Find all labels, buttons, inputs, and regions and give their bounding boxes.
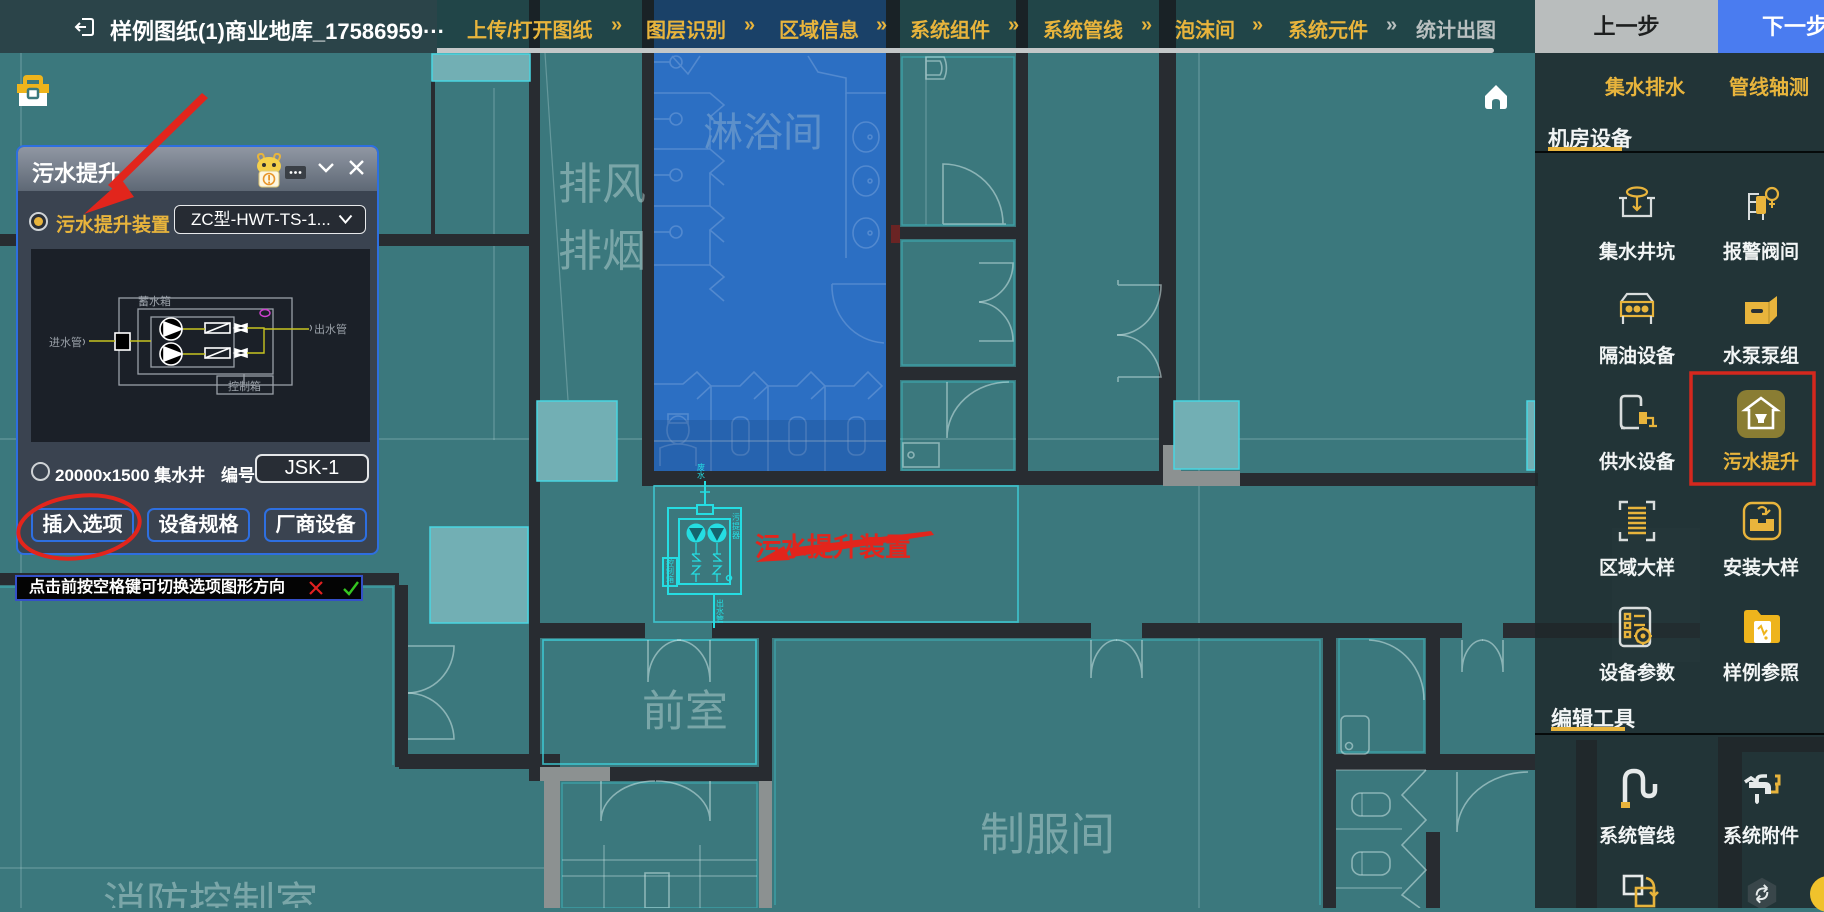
svg-text:蓄水箱: 蓄水箱: [138, 294, 171, 308]
svg-text:箱: 箱: [666, 574, 674, 584]
svg-text:出水管: 出水管: [314, 322, 347, 336]
svg-text:排风: 排风: [558, 160, 646, 209]
svg-text:提: 提: [732, 521, 740, 531]
svg-text:水: 水: [697, 470, 705, 480]
svg-text:淋浴间: 淋浴间: [703, 111, 823, 155]
svg-text:控制箱: 控制箱: [228, 379, 261, 393]
svg-text:进水管: 进水管: [49, 335, 82, 349]
svg-text:排烟: 排烟: [558, 227, 646, 276]
svg-text:污: 污: [732, 512, 740, 522]
svg-text:消防控制室: 消防控制室: [103, 880, 318, 908]
svg-text:管: 管: [716, 614, 724, 624]
svg-text:器: 器: [732, 531, 740, 540]
svg-text:制服间: 制服间: [980, 809, 1115, 860]
svg-text:前室: 前室: [642, 688, 728, 736]
